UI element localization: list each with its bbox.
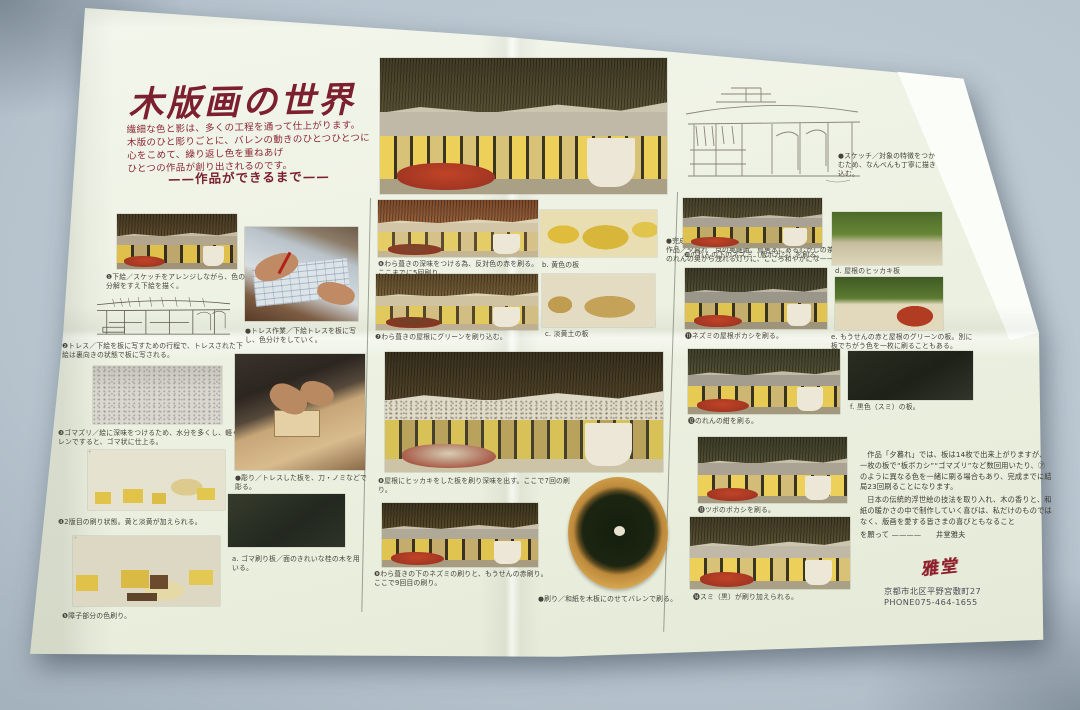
step-10-caption: ❿のれんの下のネズミ（版ボカシ）を刷る。 (684, 251, 834, 260)
tracing-photo-caption: ●トレス作業／下絵トレスを板に写し、色分けをしていく。 (245, 327, 363, 345)
photo-background: 木版画の世界 繊細な色と影は、多くの工程を通って仕上がります。 木版のひと彫りご… (0, 0, 1080, 710)
step-7-image (376, 274, 538, 330)
step-14-caption: ⓮スミ（黒）が刷り加えられる。 (693, 593, 868, 602)
plate-e-caption: e. もうせんの赤と屋根のグリーンの板。別に板でちがう色を一枚に刷ることもある。 (831, 333, 979, 351)
section-subtitle: ——作品ができるまで—— (168, 166, 330, 188)
step-5-caption: ❺障子部分の色刷り。 (62, 612, 232, 621)
essay-text: 作品「夕暮れ」では、板は14枚で出来上がりますが、一枚の板で“板ボカシ”“ゴマズ… (860, 450, 1052, 542)
pamphlet-content: 木版画の世界 繊細な色と影は、多くの工程を通って仕上がります。 木版のひと彫りご… (0, 0, 1080, 710)
plate-c-image (542, 274, 655, 327)
step-2-image (95, 295, 232, 340)
step-14-image (690, 517, 850, 589)
step-10-image (683, 198, 822, 248)
step-3-caption: ❸ゴマズリ／絵に深味をつけるため、水分を多くし、軽くバレンですると、ゴマ状に仕上… (58, 429, 250, 447)
plate-a-image (228, 494, 345, 547)
printing-photo-caption: ●刷り／和紙を木板にのせてバレンで刷る。 (538, 595, 718, 604)
step-6-image (378, 200, 538, 257)
essay-paragraph-2: 日本の伝統的浮世絵の技法を取り入れ、木の香りと、和紙の暖かさの中で制作していく喜… (860, 495, 1052, 527)
plate-f-caption: f. 黒色（スミ）の板。 (850, 403, 980, 412)
essay-signature: を願って ———— 井堂雅夫 (860, 530, 1052, 541)
plate-d-caption: d. 屋根のヒッカキ板 (835, 267, 945, 276)
step-8-caption: ❽屋根にヒッカキをした板を刷り深味を出す。ここで7回の刷り。 (378, 477, 583, 495)
step-2-caption: ❷トレス／下絵を板に写すための行程で、トレスされた下絵は裏向きの状態で板に写され… (62, 342, 248, 360)
publisher-address: 京都市北区平野宮敷町27 PHONE075-464-1655 (884, 586, 981, 608)
carving-photo (235, 354, 365, 470)
plate-b-caption: b. 黄色の板 (542, 261, 652, 270)
step-7-caption: ❼わら葺きの屋根にグリーンを刷り込む。 (375, 333, 555, 342)
step-11-caption: ⓫ネズミの屋根ボカシを刷る。 (685, 332, 830, 341)
step-12-caption: ⓬のれんの紺を刷る。 (688, 417, 833, 426)
plate-d-image (832, 212, 942, 265)
step-4-image (88, 450, 225, 510)
step-13-image (698, 437, 847, 503)
plate-b-image (540, 210, 657, 257)
step-12-image (688, 349, 840, 414)
plate-e-image (835, 277, 943, 330)
step-4-caption: ❹2版目の刷り状態。黄と淡黄が加えられる。 (58, 518, 250, 527)
address-line: 京都市北区平野宮敷町27 (884, 586, 981, 597)
publisher-stamp: 雅堂 (921, 551, 961, 580)
step-9-caption: ❾わら葺きの下のネズミの刷りと、もうせんの赤刷り。ここで9回目の刷り。 (374, 570, 552, 588)
sketch-caption: ●スケッチ／対象の特徴をつかむため、なんべんも丁寧に描き込む。 (838, 152, 942, 179)
step-9-image (382, 503, 538, 567)
carving-photo-caption: ●彫り／トレスした板を、刀・ノミなどで彫る。 (235, 474, 367, 492)
step-11-image (685, 268, 827, 329)
step-5-image (73, 536, 220, 606)
step-1-image (117, 214, 237, 269)
plate-a-caption: a. ゴマ刷り板／面のきれいな桂の木を用いる。 (232, 555, 362, 573)
plate-c-caption: c. 淡黄土の板 (545, 330, 655, 339)
step-1-caption: ❶下絵／スケッチをアレンジしながら、色の分解をすえ下絵を描く。 (106, 273, 252, 291)
phone-line: PHONE075-464-1655 (884, 597, 981, 608)
essay-paragraph-1: 作品「夕暮れ」では、板は14枚で出来上がりますが、一枚の板で“板ボカシ”“ゴマズ… (860, 450, 1052, 493)
baren-image (568, 477, 668, 589)
plate-f-image (848, 351, 973, 400)
step-3-image (93, 366, 222, 424)
finished-print-image (380, 58, 667, 194)
step-13-caption: ⓭ツボのボカシを刷る。 (698, 506, 848, 515)
tracing-photo (245, 227, 358, 321)
step-8-image (385, 352, 663, 472)
